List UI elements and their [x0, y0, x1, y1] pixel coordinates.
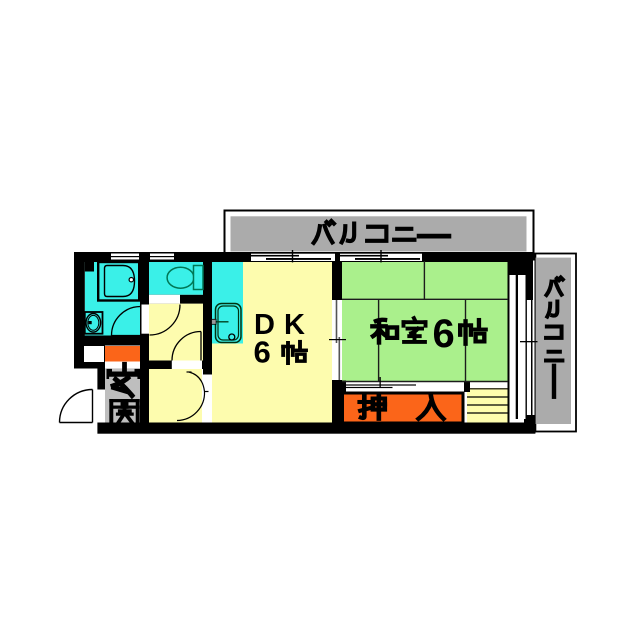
- svg-text:6: 6: [433, 312, 455, 356]
- svg-text:6: 6: [254, 335, 271, 370]
